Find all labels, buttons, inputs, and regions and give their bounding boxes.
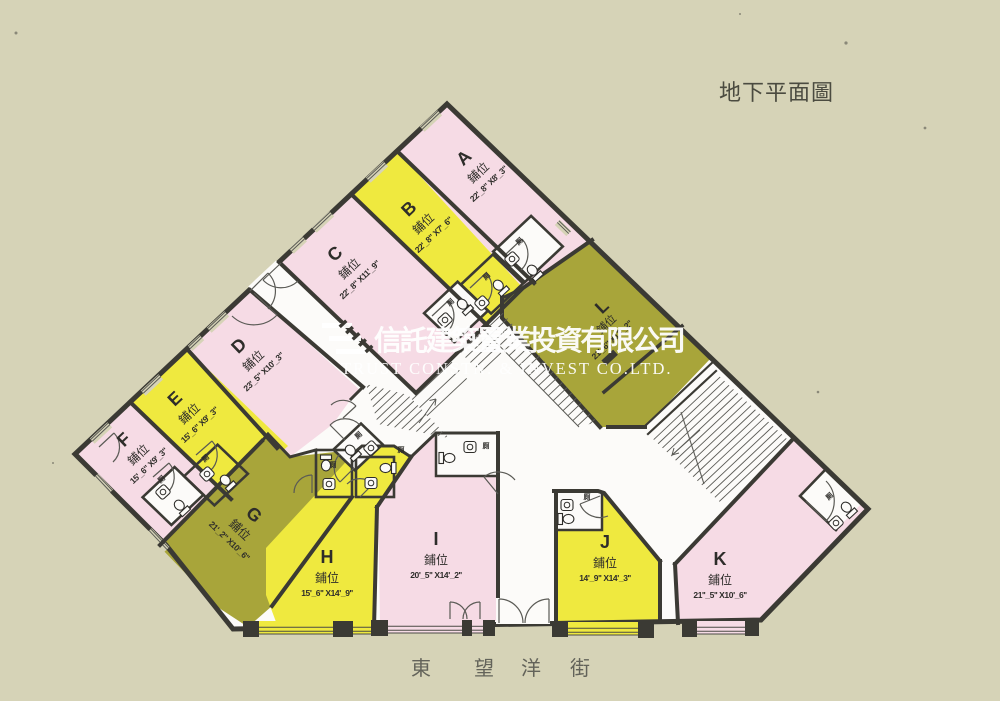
- svg-text:鋪位: 鋪位: [315, 570, 339, 585]
- svg-text:街: 街: [570, 657, 590, 680]
- svg-text:鋪位: 鋪位: [708, 572, 732, 587]
- svg-text:厠: 厠: [584, 492, 591, 501]
- svg-text:J: J: [600, 532, 610, 552]
- svg-text:15'_6'' X14'_9'': 15'_6'' X14'_9'': [301, 588, 353, 598]
- svg-text:鋪位: 鋪位: [424, 552, 448, 567]
- svg-text:地下平面圖: 地下平面圖: [719, 80, 834, 105]
- svg-text:H: H: [321, 547, 334, 567]
- svg-text:東: 東: [411, 657, 431, 680]
- svg-text:I: I: [433, 529, 438, 549]
- svg-text:厠: 厠: [330, 460, 337, 469]
- svg-text:洋: 洋: [521, 657, 541, 680]
- svg-text:TRUST CONSTN. & INVEST CO.: TRUST CONSTN. & INVEST CO.LTD.: [341, 359, 673, 378]
- svg-text:21''_5'' X10'_6'': 21''_5'' X10'_6'': [693, 590, 747, 600]
- svg-text:望: 望: [474, 657, 494, 680]
- svg-text:信託建築置業投資有限公司: 信託建築置業投資有限公司: [374, 324, 684, 357]
- svg-text:鋪位: 鋪位: [593, 555, 617, 570]
- svg-text:14'_9'' X14'_3'': 14'_9'' X14'_3'': [579, 573, 631, 583]
- svg-text:K: K: [714, 549, 727, 569]
- svg-text:厠: 厠: [483, 441, 490, 450]
- svg-text:20'_5'' X14'_2'': 20'_5'' X14'_2'': [410, 570, 462, 580]
- svg-text:厠: 厠: [398, 445, 405, 454]
